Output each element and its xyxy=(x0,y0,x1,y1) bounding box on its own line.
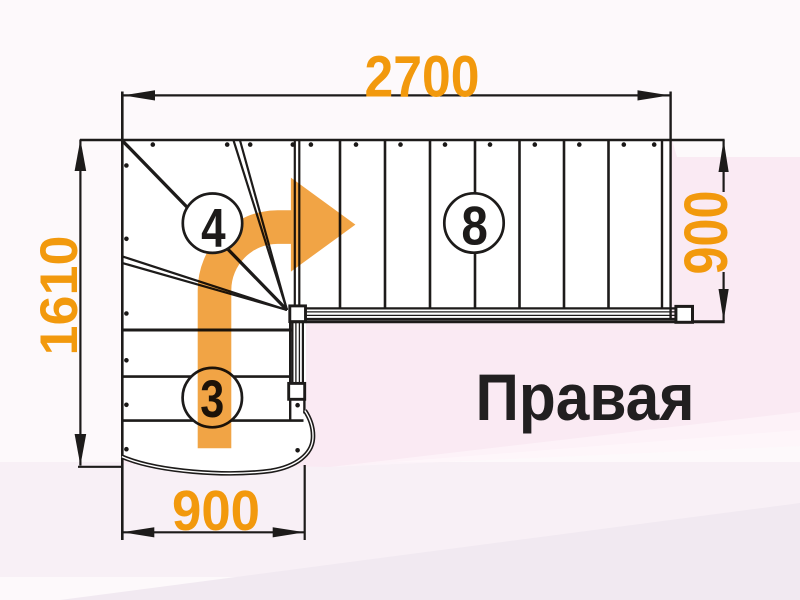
svg-text:1610: 1610 xyxy=(30,236,89,356)
svg-text:900: 900 xyxy=(672,191,740,275)
svg-text:900: 900 xyxy=(172,479,260,543)
svg-text:Правая: Правая xyxy=(476,360,695,434)
svg-text:8: 8 xyxy=(461,195,488,257)
svg-text:2700: 2700 xyxy=(365,45,480,110)
svg-text:4: 4 xyxy=(201,197,226,259)
